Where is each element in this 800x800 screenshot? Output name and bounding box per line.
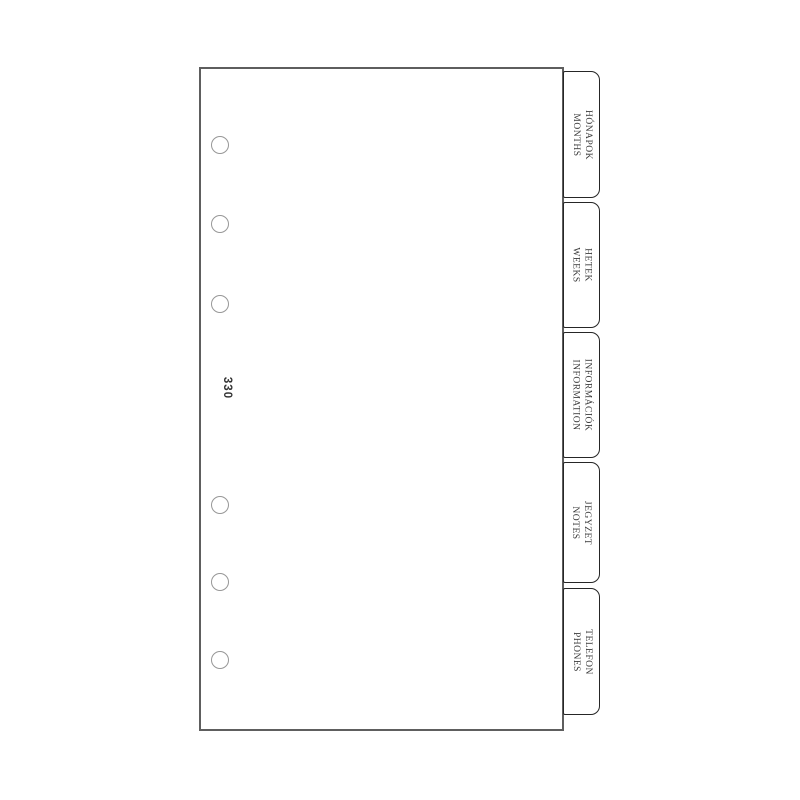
item-code: 330 — [221, 377, 233, 399]
tab-information: INFORMÁCIÓK INFORMATION — [563, 332, 600, 458]
product-image: 330 HÓNAPOK MONTHS HETEK WEEKS INFORMÁCI… — [0, 0, 800, 800]
tab-label-english: NOTES — [570, 500, 582, 544]
tab-label-hungarian: TELEFON — [582, 629, 594, 675]
tab-phones: TELEFON PHONES — [563, 588, 600, 715]
tab-notes: JEGYZET NOTES — [563, 462, 600, 583]
tab-label-hungarian: HÓNAPOK — [582, 110, 594, 160]
tab-label-hungarian: JEGYZET — [582, 500, 594, 544]
tab-label-english: WEEKS — [570, 247, 582, 282]
tab-label: JEGYZET NOTES — [570, 500, 594, 544]
punch-hole — [211, 573, 229, 591]
punch-hole — [211, 496, 229, 514]
tab-label-hungarian: HETEK — [582, 247, 594, 282]
tab-label: TELEFON PHONES — [570, 629, 594, 675]
tab-label-english: PHONES — [570, 629, 582, 675]
punch-hole — [211, 295, 229, 313]
tab-label: HETEK WEEKS — [570, 247, 594, 282]
tab-months: HÓNAPOK MONTHS — [563, 71, 600, 198]
punch-hole — [211, 215, 229, 233]
divider-page — [199, 67, 564, 731]
tab-label-hungarian: INFORMÁCIÓK — [582, 359, 594, 432]
tab-label: INFORMÁCIÓK INFORMATION — [570, 359, 594, 432]
punch-hole — [211, 136, 229, 154]
tab-label-english: INFORMATION — [570, 359, 582, 432]
tab-label: HÓNAPOK MONTHS — [570, 110, 594, 160]
punch-hole — [211, 651, 229, 669]
tab-weeks: HETEK WEEKS — [563, 202, 600, 328]
tab-label-english: MONTHS — [570, 110, 582, 160]
